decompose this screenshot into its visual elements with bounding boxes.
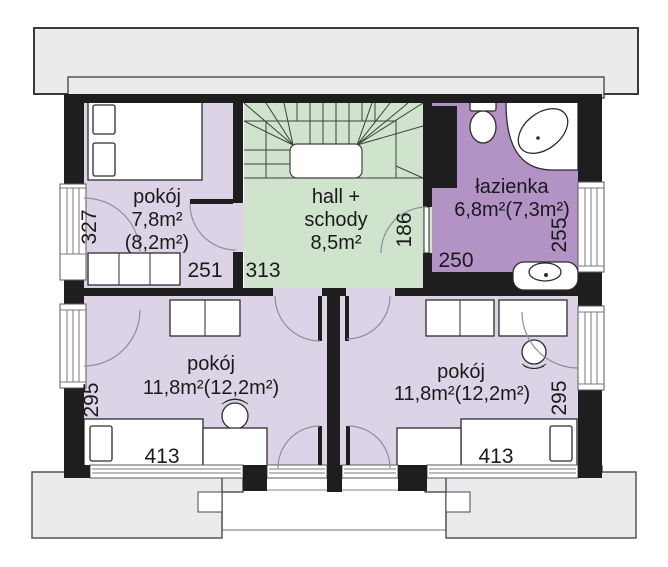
wall-right xyxy=(578,272,602,306)
bedside-unit xyxy=(203,428,267,467)
pillow xyxy=(93,143,115,176)
floor-plan-drawing: pokój 7,8m² (8,2m²) hall + schody 8,5m² … xyxy=(0,0,668,567)
dim-bath-width: 250 xyxy=(438,249,473,272)
label-small-room-area-alt: (8,2m²) xyxy=(125,232,189,254)
wall-room-divider xyxy=(327,296,340,468)
label-bathroom-name: łazienka xyxy=(475,176,549,198)
floor-plan-page: pokój 7,8m² (8,2m²) hall + schody 8,5m² … xyxy=(0,0,668,567)
wall-hall-bathroom xyxy=(423,253,432,296)
desk-left-room xyxy=(170,300,240,336)
roof-lower-right-notch xyxy=(446,492,470,512)
bedside-unit xyxy=(397,428,461,467)
dim-hall-width: 313 xyxy=(245,259,280,282)
double-bed xyxy=(88,100,202,180)
balcony-door-glazing-left xyxy=(267,465,327,478)
doorway-left-room xyxy=(273,288,322,296)
duct-block xyxy=(432,106,457,188)
dim-bath-door: 186 xyxy=(393,212,416,247)
roof-lower-left-main xyxy=(32,472,222,538)
wardrobe xyxy=(88,253,180,285)
label-small-room-area: 7,8m² xyxy=(131,209,182,231)
dim-right-room-bed: 413 xyxy=(478,445,513,468)
washbasin xyxy=(513,262,578,290)
wall-hall-bathroom xyxy=(423,94,432,207)
window-bathroom xyxy=(578,182,604,272)
toilet xyxy=(470,101,496,143)
pillow xyxy=(550,426,572,461)
wall-top xyxy=(64,94,602,103)
label-left-room-area: 11,8m²(12,2m²) xyxy=(143,377,279,399)
dim-small-room-width: 251 xyxy=(187,259,222,282)
stair-landing xyxy=(290,144,362,178)
label-hall-line1: hall + xyxy=(312,186,360,208)
dim-bath-window: 255 xyxy=(548,217,571,252)
doorway-right-room xyxy=(346,288,395,296)
roof-lower-left-notch xyxy=(198,492,222,512)
window-left-room xyxy=(60,304,86,388)
wall-right xyxy=(578,94,602,182)
roof-upper xyxy=(34,28,638,98)
dim-left-room-bed: 413 xyxy=(144,445,179,468)
dim-right-room-window: 295 xyxy=(548,380,571,415)
pillow xyxy=(93,105,115,134)
wall-middle xyxy=(322,288,346,296)
wall-smallroom-hall xyxy=(233,252,243,296)
label-right-room-area: 11,8m²(12,2m²) xyxy=(394,383,530,405)
label-small-room-name: pokój xyxy=(133,186,181,208)
wall-right xyxy=(578,390,602,468)
wall-left xyxy=(64,94,84,186)
pillow xyxy=(90,426,112,461)
dim-left-room-window: 295 xyxy=(80,382,103,417)
dim-small-room-window: 327 xyxy=(78,209,101,244)
roof-lower-right-main xyxy=(446,472,636,538)
wall-smallroom-hall xyxy=(233,94,243,203)
window-right-room xyxy=(578,306,604,390)
doorway-small-room xyxy=(235,203,244,252)
label-right-room-name: pokój xyxy=(437,361,485,383)
label-hall-line2: schody xyxy=(304,209,367,231)
label-left-room-name: pokój xyxy=(187,353,235,375)
label-hall-area: 8,5m² xyxy=(310,232,361,254)
